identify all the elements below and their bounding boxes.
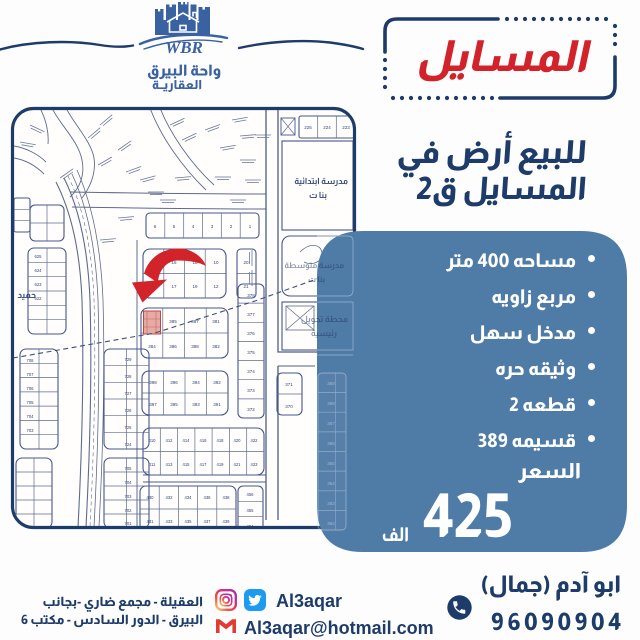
svg-text:393: 393 — [192, 402, 200, 407]
svg-text:456: 456 — [247, 492, 255, 497]
svg-text:224: 224 — [323, 125, 331, 130]
svg-text:223: 223 — [342, 125, 350, 130]
svg-text:622: 622 — [35, 296, 43, 301]
svg-text:362: 362 — [327, 521, 335, 526]
svg-text:10: 10 — [213, 260, 219, 265]
svg-text:Al3aqar@hotmail.com: Al3aqar@hotmail.com — [244, 618, 434, 638]
svg-text:381: 381 — [212, 319, 220, 324]
svg-text:729: 729 — [125, 357, 133, 362]
svg-text:412: 412 — [166, 438, 174, 443]
svg-text:423: 423 — [251, 462, 259, 467]
svg-text:20: 20 — [243, 260, 249, 265]
svg-text:422: 422 — [251, 438, 259, 443]
svg-text:397: 397 — [149, 402, 157, 407]
svg-text:706: 706 — [27, 386, 35, 391]
svg-text:388: 388 — [191, 344, 199, 349]
svg-text:623: 623 — [35, 282, 43, 287]
svg-text:363: 363 — [327, 501, 335, 506]
svg-text:724: 724 — [125, 442, 133, 447]
svg-text:705: 705 — [27, 400, 35, 405]
svg-text:382: 382 — [212, 344, 220, 349]
svg-text:377: 377 — [247, 312, 255, 317]
svg-text:703: 703 — [27, 428, 35, 433]
svg-text:439: 439 — [223, 519, 231, 524]
svg-text:418: 418 — [217, 438, 225, 443]
svg-text:367: 367 — [327, 421, 335, 426]
svg-text:410: 410 — [149, 438, 157, 443]
svg-text:370: 370 — [285, 404, 293, 409]
svg-text:725: 725 — [125, 425, 133, 430]
svg-text:373: 373 — [247, 388, 255, 393]
svg-text:WBR: WBR — [165, 38, 203, 57]
svg-text:727: 727 — [125, 391, 133, 396]
svg-text:369: 369 — [327, 381, 335, 386]
svg-text:704: 704 — [27, 414, 35, 419]
svg-text:415: 415 — [183, 462, 191, 467]
svg-text:728: 728 — [125, 374, 133, 379]
svg-text:376: 376 — [247, 331, 255, 336]
svg-text:419: 419 — [217, 462, 225, 467]
svg-text:433: 433 — [166, 519, 174, 524]
svg-text:416: 416 — [200, 438, 208, 443]
svg-text:Al3aqar: Al3aqar — [276, 591, 342, 611]
svg-text:394: 394 — [192, 380, 200, 385]
svg-text:374: 374 — [247, 369, 255, 374]
svg-text:705: 705 — [125, 466, 133, 471]
svg-text:375: 375 — [247, 350, 255, 355]
svg-text:703: 703 — [125, 494, 133, 499]
svg-text:455: 455 — [247, 508, 255, 513]
svg-text:438: 438 — [223, 495, 231, 500]
svg-text:411: 411 — [149, 462, 156, 467]
svg-text:17: 17 — [171, 284, 177, 289]
svg-text:432: 432 — [166, 495, 174, 500]
svg-text:437: 437 — [204, 519, 212, 524]
svg-text:225: 225 — [304, 125, 312, 130]
svg-text:396: 396 — [170, 380, 178, 385]
svg-text:385: 385 — [169, 319, 177, 324]
svg-text:366: 366 — [327, 441, 335, 446]
svg-text:365: 365 — [327, 461, 335, 466]
svg-text:624: 624 — [35, 268, 43, 273]
svg-text:395: 395 — [170, 402, 178, 407]
svg-text:378: 378 — [247, 293, 255, 298]
svg-text:21: 21 — [243, 284, 249, 289]
svg-text:625: 625 — [35, 254, 43, 259]
svg-text:431: 431 — [147, 519, 155, 524]
svg-text:435: 435 — [185, 519, 193, 524]
svg-text:12: 12 — [213, 284, 219, 289]
svg-text:414: 414 — [183, 438, 191, 443]
svg-text:708: 708 — [27, 358, 35, 363]
svg-text:372: 372 — [247, 407, 255, 412]
svg-text:368: 368 — [327, 401, 335, 406]
svg-text:413: 413 — [166, 462, 174, 467]
svg-text:19: 19 — [192, 284, 198, 289]
svg-text:707: 707 — [27, 372, 35, 377]
svg-text:430: 430 — [147, 495, 155, 500]
svg-text:726: 726 — [125, 408, 133, 413]
svg-text:398: 398 — [149, 380, 157, 385]
svg-text:371: 371 — [285, 382, 293, 387]
svg-text:702: 702 — [125, 508, 133, 513]
svg-text:364: 364 — [327, 481, 335, 486]
svg-text:436: 436 — [204, 495, 212, 500]
svg-text:391: 391 — [213, 402, 221, 407]
svg-text:417: 417 — [200, 462, 208, 467]
svg-text:704: 704 — [125, 480, 133, 485]
svg-text:386: 386 — [169, 344, 177, 349]
svg-text:434: 434 — [185, 495, 193, 500]
svg-text:392: 392 — [213, 380, 221, 385]
svg-text:420: 420 — [234, 438, 242, 443]
svg-text:421: 421 — [234, 462, 242, 467]
svg-text:701: 701 — [125, 521, 133, 526]
svg-text:384: 384 — [148, 344, 156, 349]
